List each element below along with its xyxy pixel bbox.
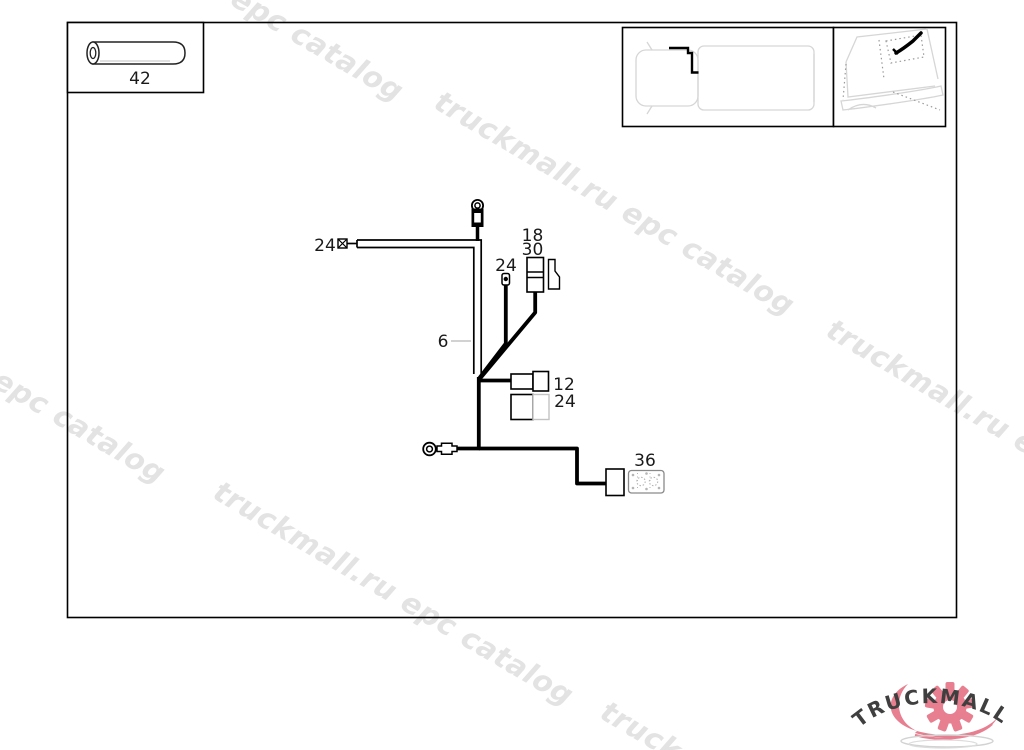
callout-24-lower[interactable]: 24 — [554, 392, 576, 412]
main-harness-outline-wire — [357, 240, 481, 377]
rear-connector-36-icon — [606, 469, 664, 496]
callout-42[interactable]: 42 — [129, 69, 151, 89]
callout-6[interactable]: 6 — [438, 332, 449, 352]
diagram-canvas: 42 24 — [0, 0, 1024, 750]
mid-bullet-terminal-icon — [502, 274, 510, 286]
logo-accent-text: PARTS — [0, 0, 9, 5]
connector-24-lower-icon — [511, 395, 549, 420]
location-thumb-box-top-view[interactable] — [623, 28, 834, 127]
connector-12-icon — [511, 372, 549, 392]
parts-catalog-page: truckmall.ru epc catalog truckmall.ru ep… — [0, 0, 1024, 750]
left-spade-terminal-icon — [338, 239, 357, 248]
callout-36[interactable]: 36 — [634, 451, 656, 471]
tube-part-icon — [87, 42, 185, 64]
wire-to-rear-connector — [479, 449, 606, 484]
location-thumb-box-cab-view[interactable] — [834, 28, 946, 127]
ground-ring-terminal-icon — [423, 443, 457, 456]
fuse-holder-icon — [527, 258, 560, 293]
callout-24-left[interactable]: 24 — [314, 236, 336, 256]
top-ring-terminal-icon — [472, 200, 484, 241]
